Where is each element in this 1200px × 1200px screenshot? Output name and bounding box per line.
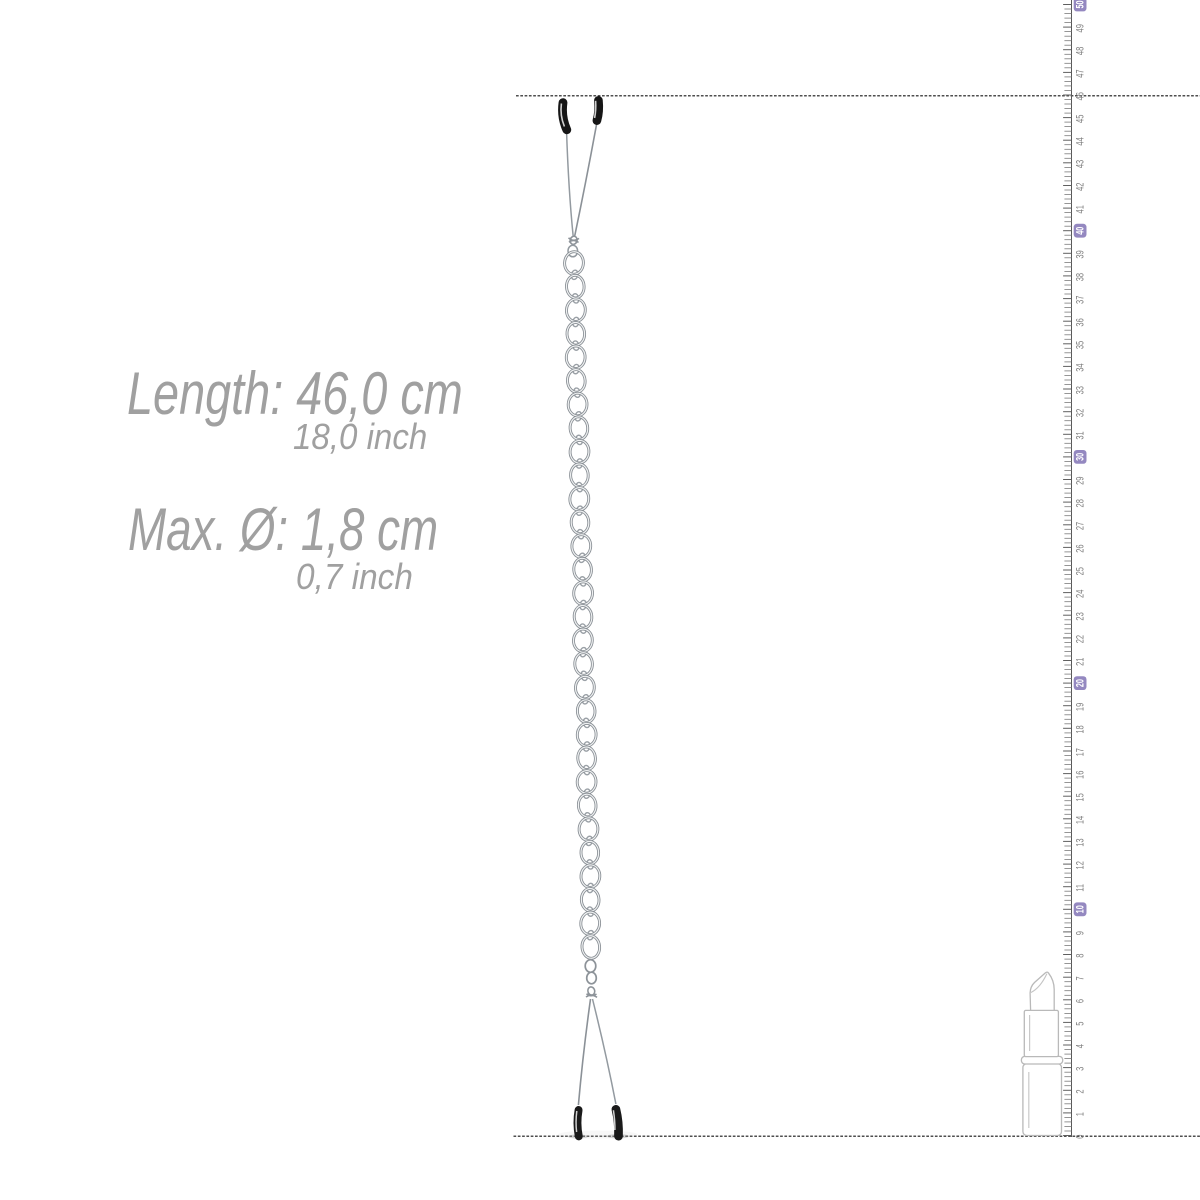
svg-text:17: 17	[1074, 748, 1087, 756]
svg-text:48: 48	[1074, 47, 1087, 55]
svg-text:5: 5	[1074, 1022, 1087, 1026]
svg-text:30: 30	[1074, 453, 1086, 461]
svg-text:43: 43	[1074, 160, 1087, 168]
svg-text:33: 33	[1074, 386, 1087, 394]
svg-text:16: 16	[1074, 771, 1087, 779]
svg-text:9: 9	[1074, 931, 1087, 935]
svg-text:22: 22	[1074, 635, 1087, 643]
svg-text:21: 21	[1074, 658, 1087, 666]
svg-text:10: 10	[1074, 905, 1086, 913]
svg-text:29: 29	[1074, 477, 1087, 485]
svg-text:39: 39	[1074, 250, 1087, 258]
svg-text:14: 14	[1074, 815, 1087, 824]
svg-text:49: 49	[1074, 24, 1087, 32]
svg-text:23: 23	[1074, 612, 1087, 620]
svg-text:24: 24	[1074, 589, 1087, 598]
svg-text:15: 15	[1074, 793, 1087, 801]
svg-text:42: 42	[1074, 183, 1087, 191]
svg-text:35: 35	[1074, 341, 1087, 349]
svg-text:34: 34	[1074, 363, 1087, 372]
svg-text:37: 37	[1074, 296, 1087, 304]
svg-text:25: 25	[1074, 567, 1087, 575]
svg-text:44: 44	[1074, 137, 1087, 146]
svg-text:26: 26	[1074, 544, 1087, 552]
svg-text:12: 12	[1074, 861, 1087, 869]
svg-text:28: 28	[1074, 499, 1087, 507]
svg-text:0: 0	[1074, 1135, 1087, 1139]
svg-text:45: 45	[1074, 115, 1087, 123]
svg-text:38: 38	[1074, 273, 1087, 281]
svg-text:7: 7	[1074, 976, 1087, 980]
svg-text:19: 19	[1074, 703, 1087, 711]
svg-text:20: 20	[1074, 679, 1086, 687]
svg-text:50: 50	[1074, 0, 1086, 8]
svg-text:32: 32	[1074, 409, 1087, 417]
svg-text:36: 36	[1074, 318, 1087, 326]
svg-text:1: 1	[1074, 1112, 1087, 1116]
svg-text:31: 31	[1074, 431, 1087, 439]
svg-text:41: 41	[1074, 205, 1087, 213]
svg-text:4: 4	[1074, 1044, 1087, 1049]
svg-text:6: 6	[1074, 999, 1087, 1003]
svg-text:13: 13	[1074, 838, 1087, 846]
svg-text:3: 3	[1074, 1067, 1087, 1071]
svg-text:18: 18	[1074, 725, 1087, 733]
svg-text:27: 27	[1074, 522, 1087, 530]
svg-text:40: 40	[1074, 227, 1086, 235]
svg-text:47: 47	[1074, 69, 1087, 77]
svg-text:11: 11	[1074, 884, 1087, 892]
svg-text:46: 46	[1074, 92, 1087, 100]
svg-text:8: 8	[1074, 954, 1087, 958]
svg-text:2: 2	[1074, 1089, 1087, 1093]
